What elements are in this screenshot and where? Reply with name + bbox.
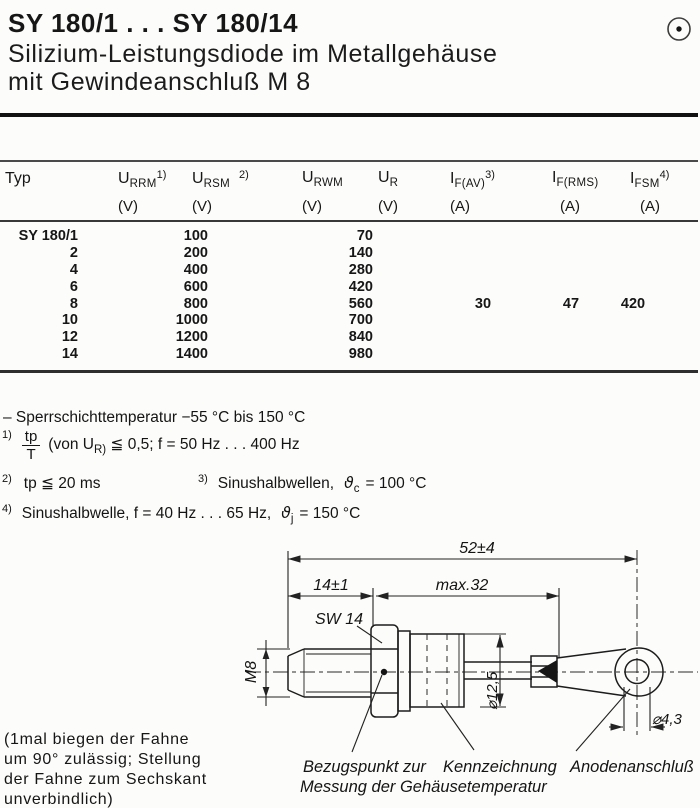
table-row: 101000700: [0, 312, 700, 329]
table-bottom-rule: [0, 370, 698, 373]
col-header-ifav: IF(AV)3): [450, 169, 495, 190]
table-header-rule: [0, 220, 698, 222]
thread-size-label: M8: [243, 661, 260, 683]
unit-ifrms: (A): [560, 198, 580, 215]
unit-ifsm: (A): [640, 198, 660, 215]
fraction-tp-over-t: tp T: [22, 428, 41, 463]
ref-point-caption-line1: Bezugspunkt zur: [303, 758, 427, 776]
note-junction-temperature: – Sperrschichttemperatur −55 °C bis 150 …: [3, 409, 305, 427]
table-row: 8800560: [0, 296, 700, 313]
dim-total-label: 52±4: [459, 540, 495, 557]
case-temp-reference-dot: [381, 669, 387, 675]
footnote-4: 4)Sinushalbwelle, f = 40 Hz . . . 65 Hz,…: [2, 503, 360, 525]
table-row: 121200840: [0, 329, 700, 346]
m8-arrow-down: [263, 687, 270, 697]
col-header-ur: UR: [378, 169, 398, 189]
col-header-ifsm: IFSM4): [630, 169, 669, 190]
dim-thread-label: 14±1: [313, 577, 348, 594]
table-row: 6600420: [0, 279, 700, 296]
unit-ur: (V): [378, 198, 398, 215]
flange-ring: [398, 631, 410, 711]
value-ifsm: 420: [611, 296, 655, 313]
unit-urwm: (V): [302, 198, 322, 215]
col-header-ifrms: IF(RMS): [552, 169, 599, 189]
subtitle-line-1: Silizium-Leistungsdiode im Metallgehäuse: [8, 40, 498, 68]
marking-leader-line: [441, 703, 474, 750]
unit-ursm: (V): [192, 198, 212, 215]
col-header-urwm: URWM: [302, 169, 343, 189]
hole-diameter-dim: ⌀4,3: [609, 687, 683, 731]
table-row: 2200140: [0, 245, 700, 262]
outline-drawing: 52±4 14±1 max.32 SW 14 M8: [240, 534, 700, 808]
footnote-1-marker: 1): [2, 429, 12, 441]
page-title: SY 180/1 . . . SY 180/14: [8, 8, 298, 39]
anode-caption: Anodenanschluß: [569, 758, 694, 776]
footnote-1-text: (von UR) ≦ 0,5; f = 50 Hz . . . 400 Hz: [48, 435, 299, 456]
m8-arrow-up: [263, 649, 270, 659]
bending-remark: (1mal biegen der Fahne um 90° zulässig; …: [4, 730, 207, 808]
circle-dot-icon: [664, 14, 694, 44]
table-row: SY 180/110070: [0, 228, 700, 245]
ref-point-caption-line2: Messung der Gehäusetemperatur: [300, 778, 548, 796]
table-top-rule: [0, 160, 698, 162]
table-row: 4400280: [0, 262, 700, 279]
page-subtitle: Silizium-Leistungsdiode im Metallgehäuse…: [8, 40, 498, 96]
unit-ifav: (A): [450, 198, 470, 215]
ref-point-leader-line: [352, 675, 382, 752]
value-if-av: 30: [463, 296, 503, 313]
hole-diameter-label: ⌀4,3: [652, 711, 683, 728]
subtitle-line-2: mit Gewindeanschluß M 8: [8, 68, 498, 96]
unit-urrm: (V): [118, 198, 138, 215]
col-header-typ: Typ: [5, 170, 31, 188]
footnote-3: 3)Sinushalbwellen,ϑc= 100 °C: [198, 473, 426, 495]
case-body: [410, 634, 464, 707]
body-diameter-label: ⌀12,5: [484, 671, 501, 710]
crimp-sleeve: [531, 656, 557, 687]
datasheet-page: SY 180/1 . . . SY 180/14 Silizium-Leistu…: [0, 0, 700, 808]
title-divider-rule: [0, 113, 698, 117]
marking-caption: Kennzeichnung: [443, 758, 558, 776]
threaded-stud: [288, 649, 371, 697]
col-header-ursm: URSM2): [192, 169, 249, 190]
sw14-leader-line: [357, 626, 382, 643]
anode-leader-line: [576, 689, 630, 751]
col-header-urrm: URRM1): [118, 169, 166, 190]
footnote-1: 1) tp T (von UR) ≦ 0,5; f = 50 Hz . . . …: [2, 428, 300, 463]
table-row: 141400980: [0, 346, 700, 363]
dim-body-label: max.32: [436, 577, 489, 594]
hex-width-label: SW 14: [315, 611, 363, 628]
value-if-rms: 47: [551, 296, 591, 313]
footnote-2: 2)tp ≦ 20 ms: [2, 473, 101, 493]
